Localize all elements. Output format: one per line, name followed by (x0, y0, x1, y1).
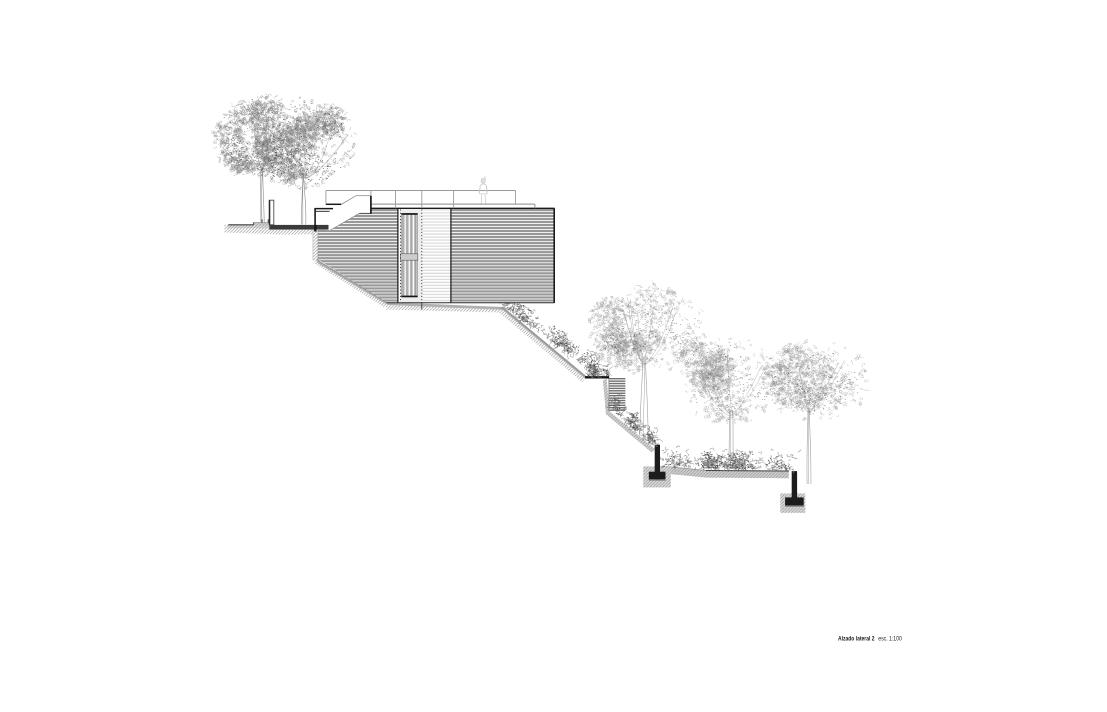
svg-text:esc. 1:100: esc. 1:100 (878, 635, 902, 642)
svg-text:Alzado lateral 2: Alzado lateral 2 (838, 635, 875, 642)
